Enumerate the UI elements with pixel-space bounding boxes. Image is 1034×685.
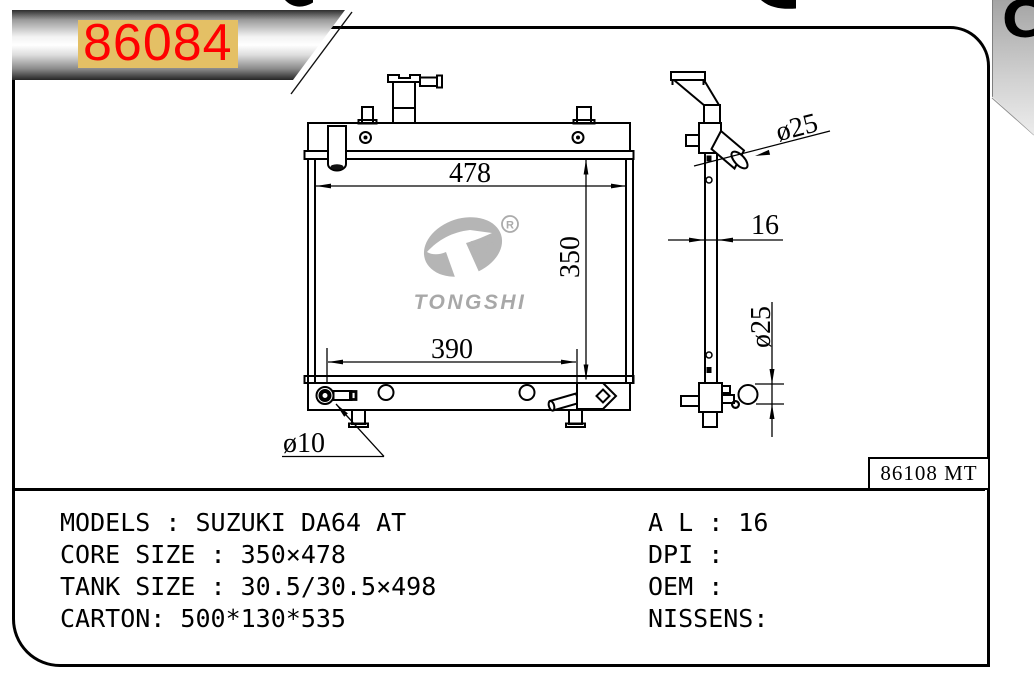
registered-letter: R (506, 220, 514, 232)
spec-models: MODELS : SUZUKI DA64 AT (60, 510, 406, 536)
registered-trademark-icon: R (502, 216, 518, 232)
ribbon-glyph: C (1002, 0, 1034, 46)
spec-tank-size: TANK SIZE : 30.5/30.5×498 (60, 574, 436, 600)
reference-code-box: 86108 MT (868, 457, 990, 490)
spec-nissens: NISSENS: (648, 606, 768, 632)
dim-core-height: 350 (555, 236, 586, 278)
dim-core-width: 478 (449, 158, 491, 189)
dim-drain-diameter: ø10 (283, 428, 325, 459)
dim-thickness: 16 (751, 210, 779, 241)
spec-al: A L : 16 (648, 510, 768, 536)
spec-oem: OEM : (648, 574, 723, 600)
section-divider (15, 488, 985, 491)
spec-dpi: DPI : (648, 542, 723, 568)
radiator-side-view (671, 72, 758, 427)
spec-carton: CARTON: 500*130*535 (60, 606, 346, 632)
brand-emblem-icon (416, 208, 510, 287)
dim-outlet-diameter: ø25 (746, 306, 777, 348)
spec-core-size: CORE SIZE : 350×478 (60, 542, 346, 568)
dim-inlet-diameter: ø25 (773, 108, 821, 149)
part-number-banner: 86084 (12, 10, 345, 80)
brand-watermark: R TONGSHI (414, 208, 527, 314)
dim-lower-width: 390 (431, 334, 473, 365)
brand-name: TONGSHI (414, 291, 527, 314)
part-number: 86084 (78, 20, 238, 68)
